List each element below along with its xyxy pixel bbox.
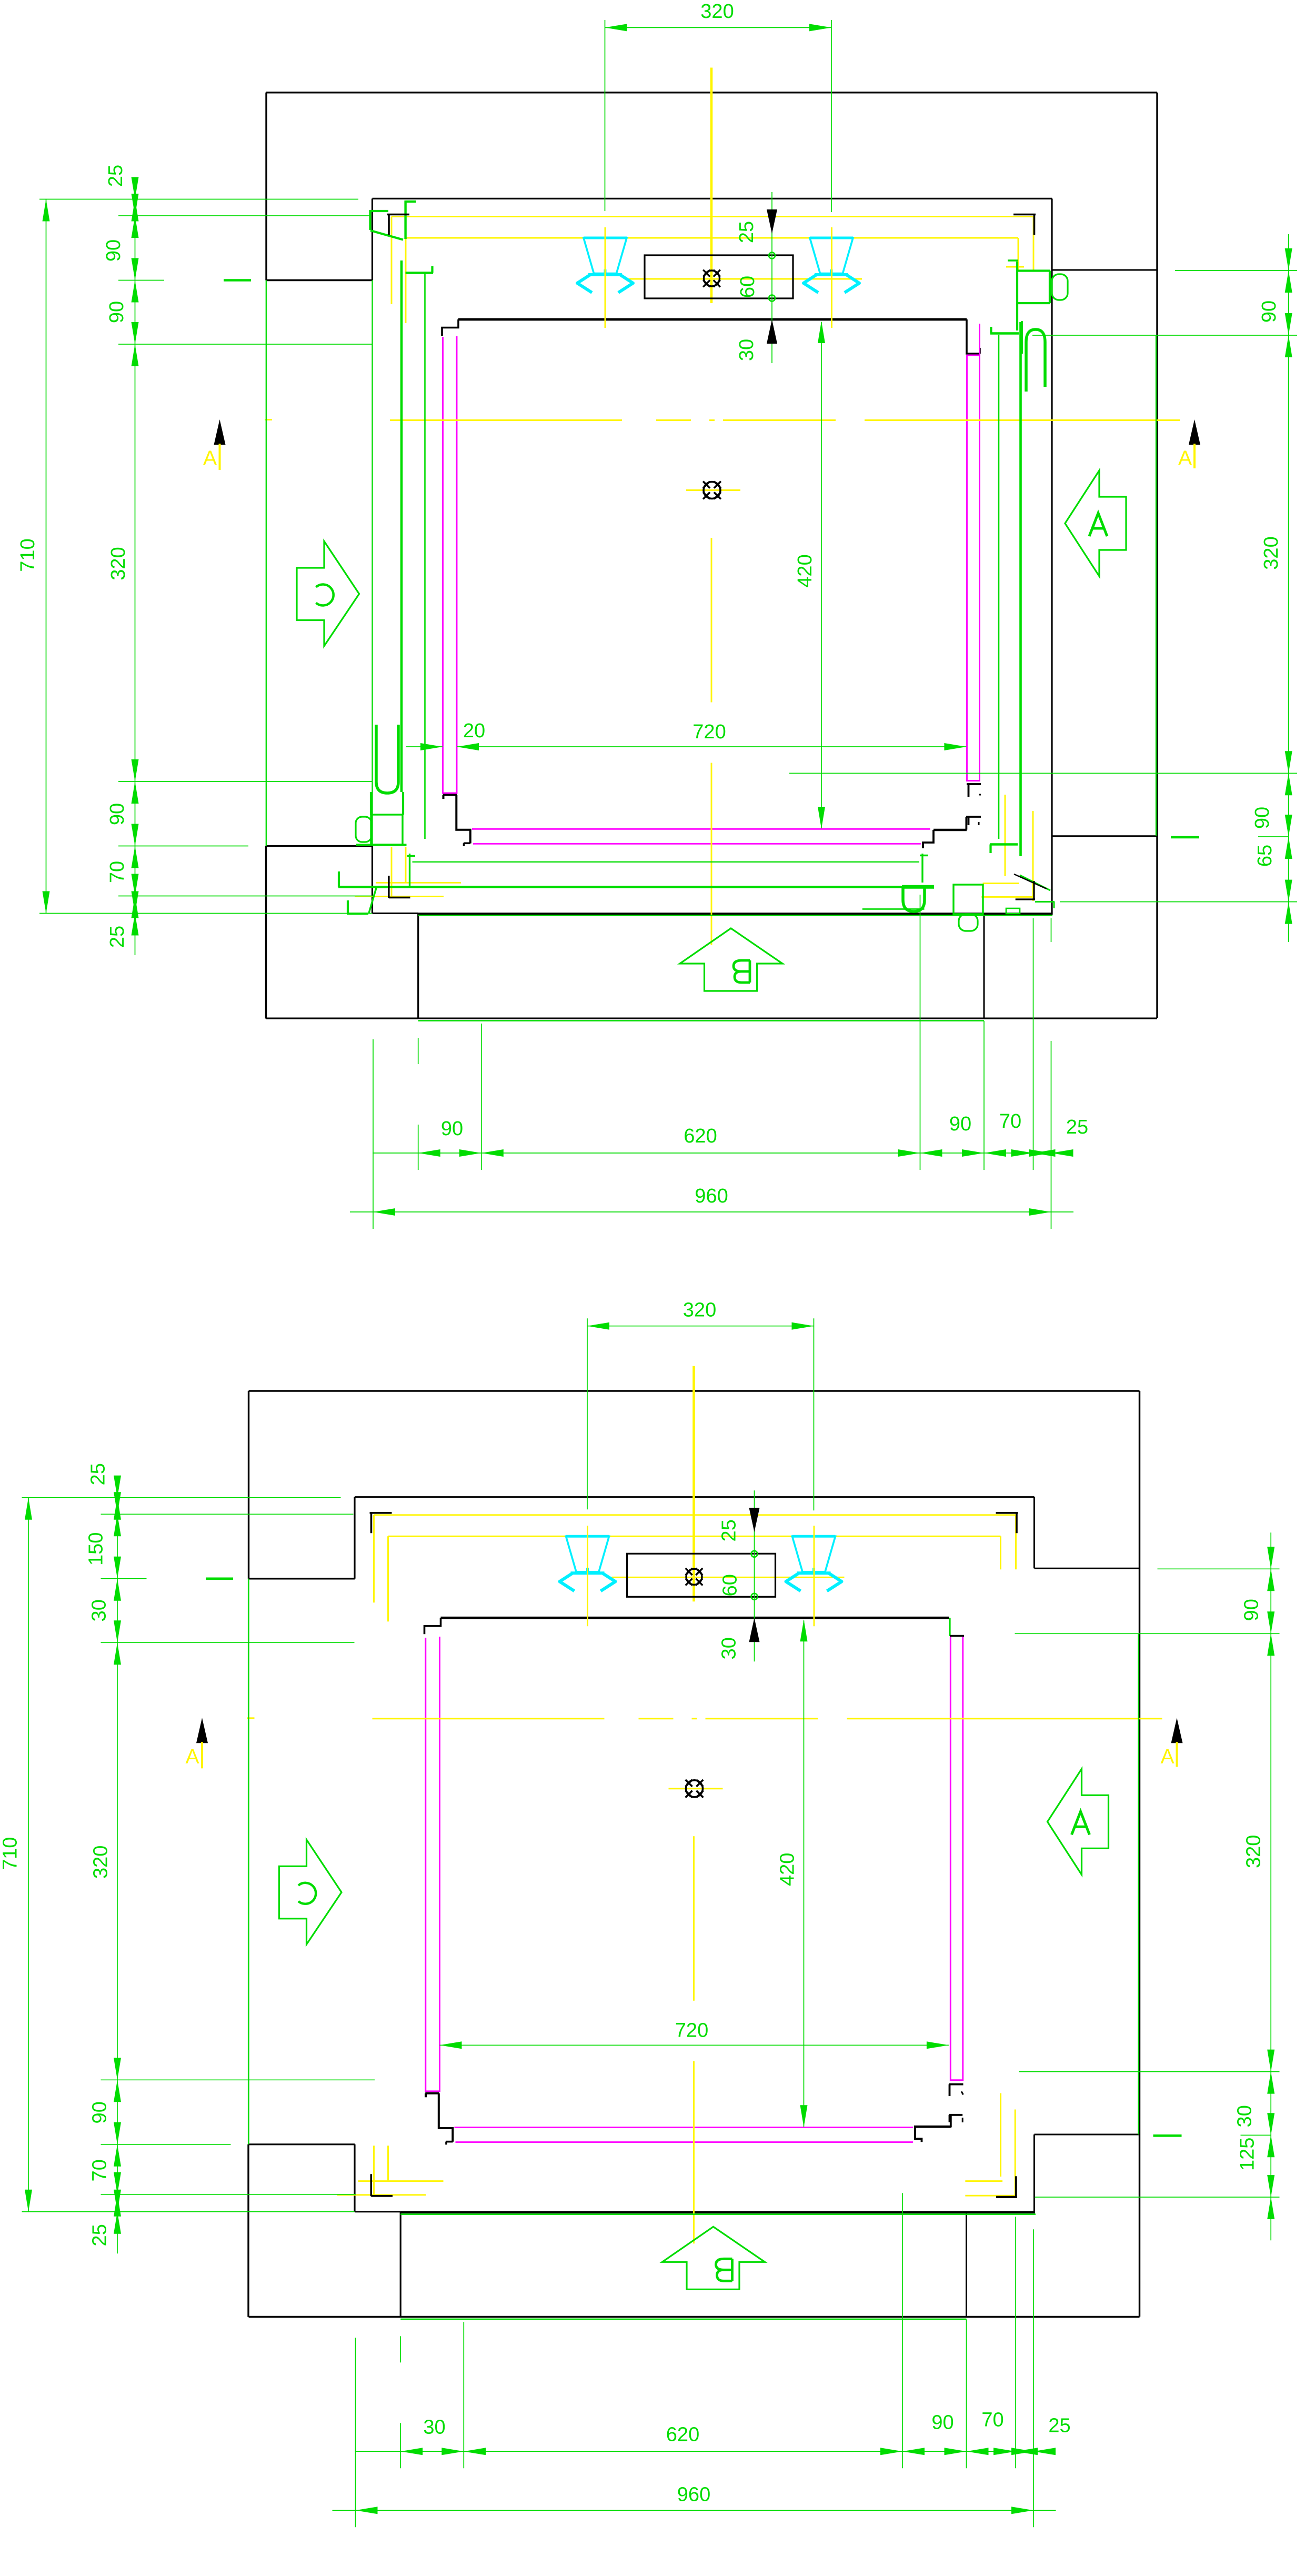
svg-text:65: 65 xyxy=(1254,845,1276,867)
svg-text:25: 25 xyxy=(718,1519,740,1541)
svg-text:25: 25 xyxy=(106,926,128,948)
svg-text:90: 90 xyxy=(1251,807,1273,829)
svg-text:320: 320 xyxy=(107,547,129,580)
svg-text:30: 30 xyxy=(423,2416,445,2438)
svg-text:150: 150 xyxy=(85,1532,107,1566)
svg-text:70: 70 xyxy=(999,1110,1021,1132)
svg-text:420: 420 xyxy=(794,554,816,587)
svg-text:30: 30 xyxy=(1234,2105,1256,2127)
svg-text:320: 320 xyxy=(683,1299,716,1321)
svg-text:620: 620 xyxy=(666,2423,699,2445)
svg-text:20: 20 xyxy=(463,720,485,742)
svg-text:A: A xyxy=(203,447,217,470)
svg-text:90: 90 xyxy=(106,301,128,323)
svg-text:620: 620 xyxy=(684,1125,717,1147)
svg-text:90: 90 xyxy=(931,2411,953,2433)
svg-text:710: 710 xyxy=(17,538,39,572)
svg-text:90: 90 xyxy=(1258,300,1280,323)
svg-text:60: 60 xyxy=(719,1574,741,1596)
svg-text:90: 90 xyxy=(106,803,128,825)
svg-text:320: 320 xyxy=(90,1846,112,1879)
svg-text:125: 125 xyxy=(1237,2138,1259,2171)
svg-text:25: 25 xyxy=(105,165,127,187)
svg-text:320: 320 xyxy=(700,1,734,23)
svg-text:90: 90 xyxy=(103,239,125,262)
svg-text:90: 90 xyxy=(89,2101,111,2123)
svg-text:A: A xyxy=(1178,447,1192,470)
svg-text:710: 710 xyxy=(0,1837,22,1870)
svg-text:90: 90 xyxy=(1241,1599,1263,1621)
svg-text:A: A xyxy=(1160,1746,1174,1768)
svg-text:90: 90 xyxy=(441,1118,463,1140)
svg-text:70: 70 xyxy=(981,2409,1003,2431)
svg-text:90: 90 xyxy=(949,1113,971,1135)
svg-text:60: 60 xyxy=(737,276,759,298)
svg-text:25: 25 xyxy=(89,2224,111,2246)
svg-text:960: 960 xyxy=(695,1185,728,1207)
svg-text:420: 420 xyxy=(777,1853,799,1886)
svg-text:320: 320 xyxy=(1243,1835,1265,1868)
svg-text:25: 25 xyxy=(1048,2414,1070,2437)
svg-text:25: 25 xyxy=(736,221,758,243)
svg-text:25: 25 xyxy=(87,1463,109,1485)
svg-text:30: 30 xyxy=(88,1599,111,1621)
svg-text:720: 720 xyxy=(692,721,726,743)
svg-text:70: 70 xyxy=(89,2159,111,2181)
svg-text:720: 720 xyxy=(675,2019,708,2041)
svg-text:30: 30 xyxy=(718,1637,740,1659)
svg-text:70: 70 xyxy=(106,861,128,883)
svg-text:25: 25 xyxy=(1066,1116,1088,1138)
svg-text:960: 960 xyxy=(677,2483,710,2505)
svg-text:320: 320 xyxy=(1260,536,1282,569)
svg-text:30: 30 xyxy=(736,339,758,361)
svg-text:A: A xyxy=(185,1746,199,1768)
